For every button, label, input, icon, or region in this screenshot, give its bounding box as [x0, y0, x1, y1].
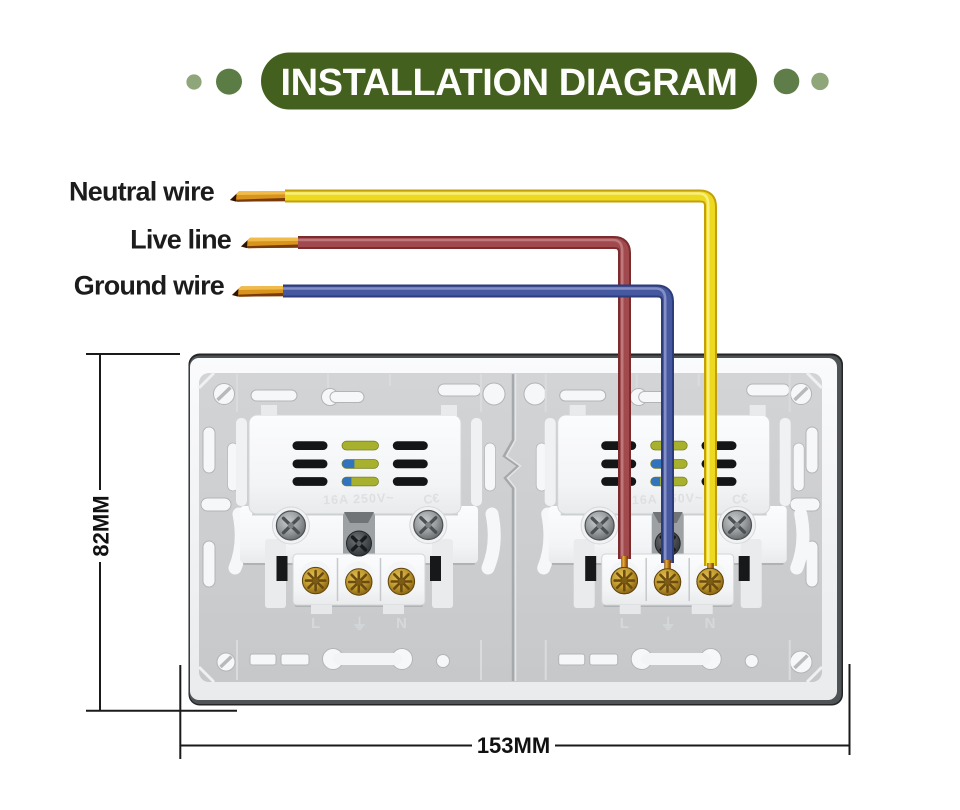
svg-text:Ground wire: Ground wire [74, 271, 225, 301]
svg-text:Neutral wire: Neutral wire [69, 177, 215, 207]
svg-text:Live line: Live line [130, 225, 232, 255]
svg-text:INSTALLATION DIAGRAM: INSTALLATION DIAGRAM [280, 62, 737, 104]
svg-text:82MM: 82MM [89, 495, 114, 556]
svg-text:153MM: 153MM [477, 733, 550, 758]
